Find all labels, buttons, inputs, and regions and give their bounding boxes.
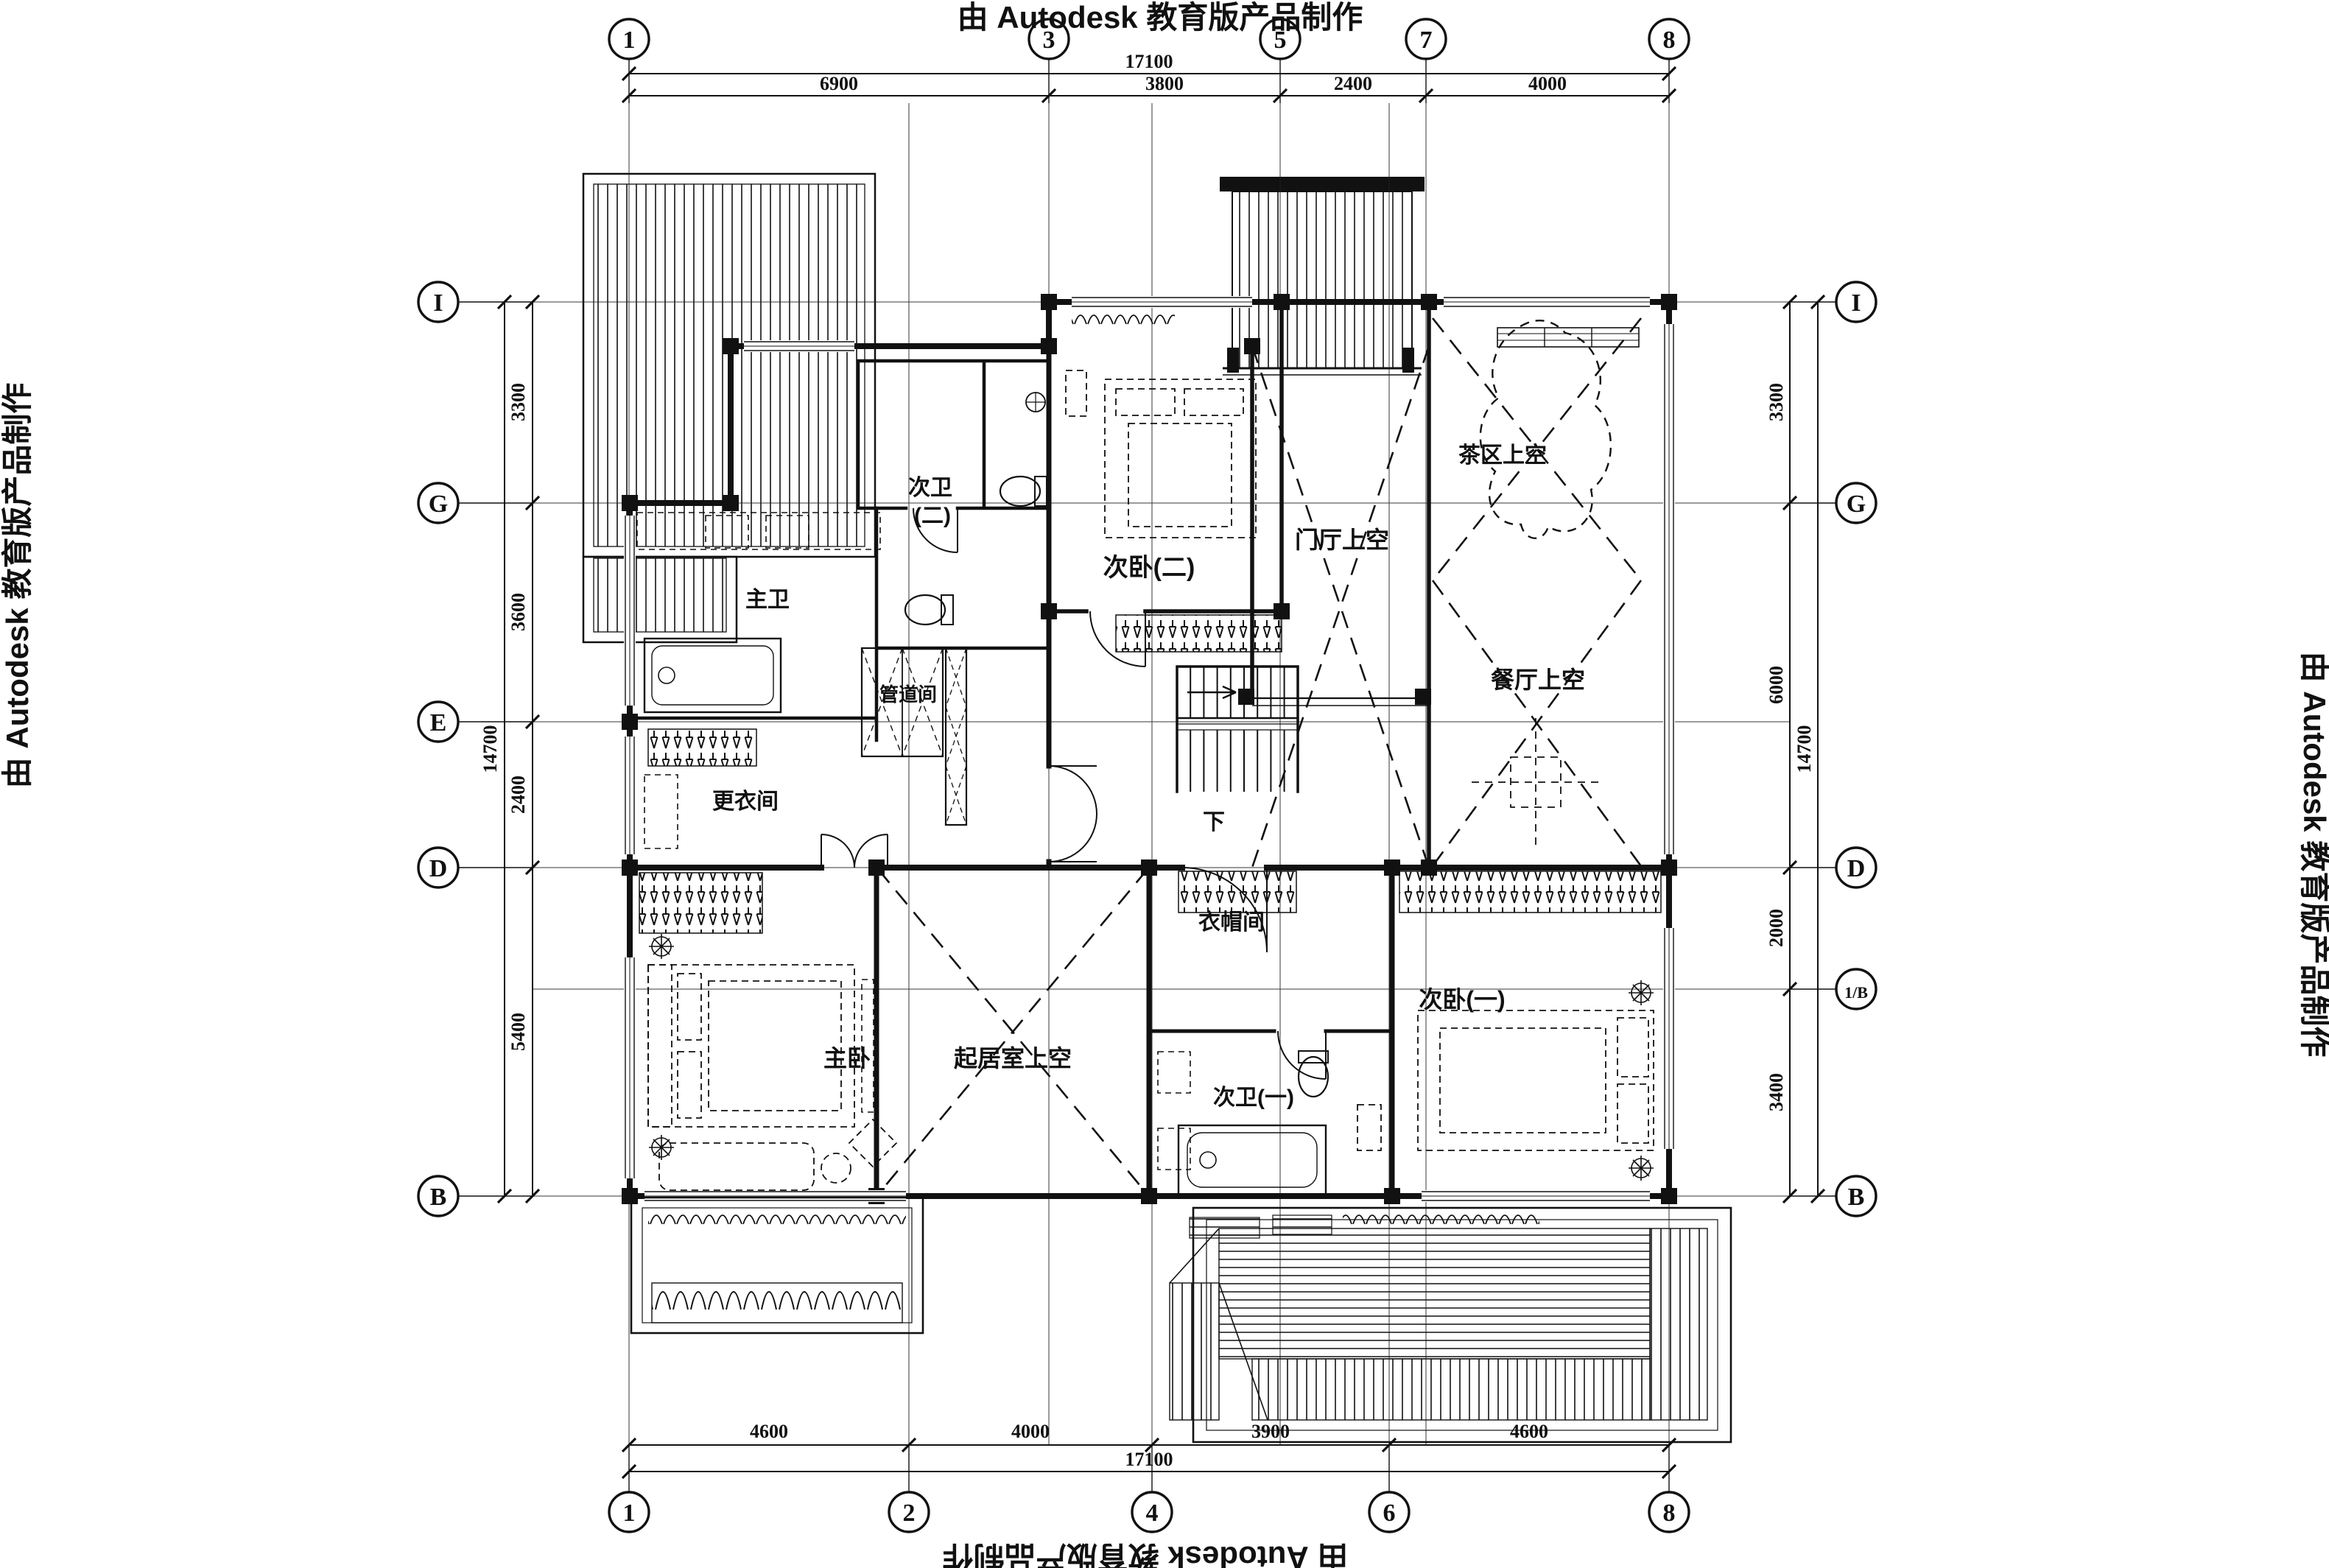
window [644, 1190, 906, 1202]
grid-bubble-label: B [1848, 1184, 1865, 1211]
column [723, 495, 739, 511]
dimension-label: 14700 [479, 725, 501, 773]
window [1444, 296, 1650, 308]
grid-bubble-label: 6 [1383, 1500, 1396, 1527]
autodesk-banners: 由 Autodesk 教育版产品制作由 Autodesk 教育版产品制作由 Au… [0, 0, 2329, 1568]
dimension-label: 17100 [1125, 1449, 1173, 1470]
grid-bubble-label: 4 [1146, 1500, 1159, 1527]
highwindow-band [1497, 328, 1639, 347]
floor-plan-page: 1710069003800240040004600400039004600171… [0, 0, 2329, 1568]
grid-bubble-label: I [433, 289, 443, 317]
column [1415, 689, 1431, 705]
room-label: 餐厅上空 [1491, 667, 1585, 693]
grid-bubble-label: 1 [623, 1500, 636, 1527]
dimension-label: 3300 [507, 383, 529, 421]
column [1141, 1188, 1157, 1204]
room-label: 主卫 [745, 588, 790, 612]
room-label: 更衣间 [712, 790, 779, 814]
autodesk-educational-banner: 由 Autodesk 教育版产品制作 [0, 383, 35, 789]
grid-bubble-label: 8 [1663, 1500, 1676, 1527]
window [624, 516, 636, 706]
room-label: 次卧(二) [1103, 554, 1195, 582]
column [1238, 689, 1254, 705]
grid-bubble-label: B [430, 1184, 447, 1211]
dimension-label: 6900 [820, 73, 858, 94]
tree-canopy-dashed [1480, 320, 1611, 538]
floor-plan-canvas: 1710069003800240040004600400039004600171… [0, 0, 2329, 1568]
room-label: 下 [1203, 810, 1225, 834]
window [1663, 928, 1675, 1149]
grid-bubble-label: 1 [623, 27, 636, 54]
grid-bubble-label: D [1847, 855, 1866, 882]
window [1072, 296, 1252, 308]
dimension-label: 5400 [507, 1013, 529, 1051]
room-label: 衣帽间 [1198, 910, 1265, 935]
column [622, 714, 638, 730]
column [622, 495, 638, 511]
dimension-label: 4000 [1528, 73, 1567, 94]
grid-bubble-label: E [430, 709, 447, 736]
room-label: 起居室上空 [954, 1045, 1072, 1072]
column-cross-dashed [1472, 718, 1600, 847]
window [744, 340, 854, 352]
window [624, 957, 636, 1178]
column [1141, 859, 1157, 876]
room-label: 管道间 [879, 683, 937, 706]
column [1421, 294, 1437, 310]
room-label: 次卫(一) [1213, 1086, 1294, 1110]
column [1661, 1188, 1677, 1204]
grid-bubble-label: D [429, 855, 448, 882]
grid-bubble-label: I [1851, 289, 1861, 317]
autodesk-educational-banner: 由 Autodesk 教育版产品制作 [958, 0, 1363, 35]
window [1663, 324, 1675, 854]
column [1384, 859, 1400, 876]
dimension-label: 6000 [1766, 666, 1787, 704]
column [723, 338, 739, 354]
void-edge-beam [1252, 698, 1429, 706]
dimension-label: 2400 [1334, 73, 1372, 94]
grid-bubble-label: 1/B [1844, 983, 1868, 1002]
dimension-label: 3900 [1251, 1421, 1290, 1442]
window [624, 736, 636, 854]
terrace-roof [1170, 1208, 1731, 1442]
column [622, 1188, 638, 1204]
dimension-label: 14700 [1794, 725, 1815, 773]
column [1661, 859, 1677, 876]
window [1422, 1190, 1650, 1202]
room-label: 门厅上空 [1295, 527, 1389, 553]
room-label: 主卧 [823, 1045, 871, 1072]
dimension-label: 4600 [1510, 1421, 1548, 1442]
column [1041, 338, 1057, 354]
dimension-label: 4600 [750, 1421, 788, 1442]
room-label: 次卧(一) [1419, 986, 1505, 1013]
grid-bubble-label: G [429, 491, 448, 518]
column [622, 859, 638, 876]
column [868, 859, 885, 876]
column [1041, 294, 1057, 310]
column [1244, 338, 1260, 354]
staircase [1177, 667, 1298, 792]
room-label: 次卫 [908, 476, 952, 500]
column [1041, 603, 1057, 619]
dimension-label: 17100 [1125, 51, 1173, 72]
dimension-label: 2400 [507, 776, 529, 814]
dimension-label: 4000 [1011, 1421, 1050, 1442]
autodesk-educational-banner: 由 Autodesk 教育版产品制作 [943, 1540, 1349, 1568]
grid-bubble-label: 8 [1663, 27, 1676, 54]
grid-bubble-label: 2 [903, 1500, 916, 1527]
column [1661, 294, 1677, 310]
dimension-label: 3800 [1145, 73, 1184, 94]
column [1274, 294, 1290, 310]
dimension-label: 3600 [507, 593, 529, 631]
grid-bubble-label: 7 [1420, 27, 1433, 54]
dimension-label: 2000 [1766, 909, 1787, 947]
room-label: (二) [914, 504, 951, 528]
dimension-label: 3400 [1766, 1073, 1787, 1111]
dimension-label: 3300 [1766, 383, 1787, 421]
column [1384, 1188, 1400, 1204]
autodesk-educational-banner: 由 Autodesk 教育版产品制作 [2297, 652, 2329, 1058]
room-label: 茶区上空 [1458, 443, 1547, 468]
grid-bubble-label: G [1847, 491, 1866, 518]
